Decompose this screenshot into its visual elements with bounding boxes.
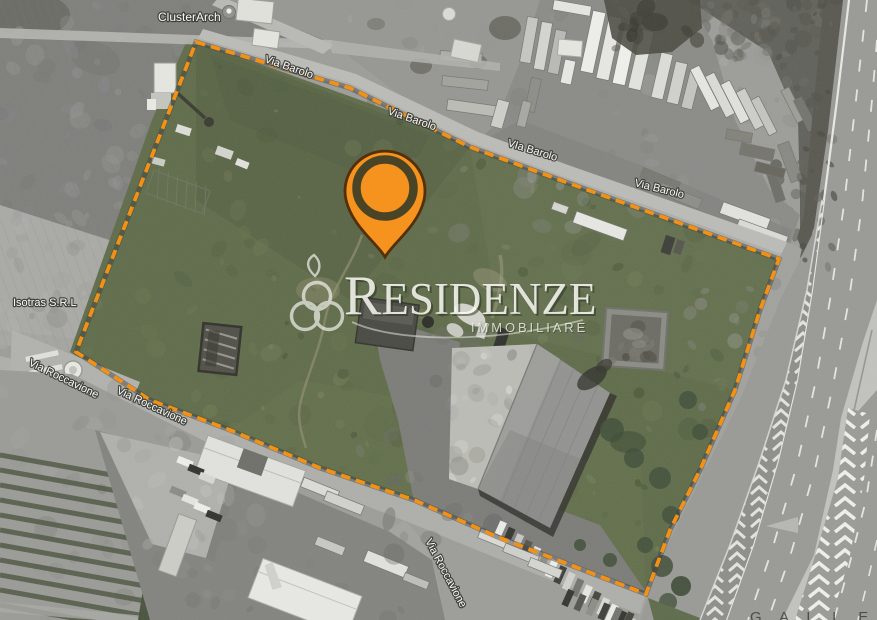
svg-text:IMMOBILIARE: IMMOBILIARE	[471, 320, 588, 335]
svg-text:G A L L E R: G A L L E R	[750, 609, 877, 620]
svg-text:ClusterArch: ClusterArch	[158, 10, 221, 24]
svg-text:Isotras S.R.L: Isotras S.R.L	[13, 297, 77, 309]
svg-text:RESIDENZE: RESIDENZE	[344, 265, 596, 327]
